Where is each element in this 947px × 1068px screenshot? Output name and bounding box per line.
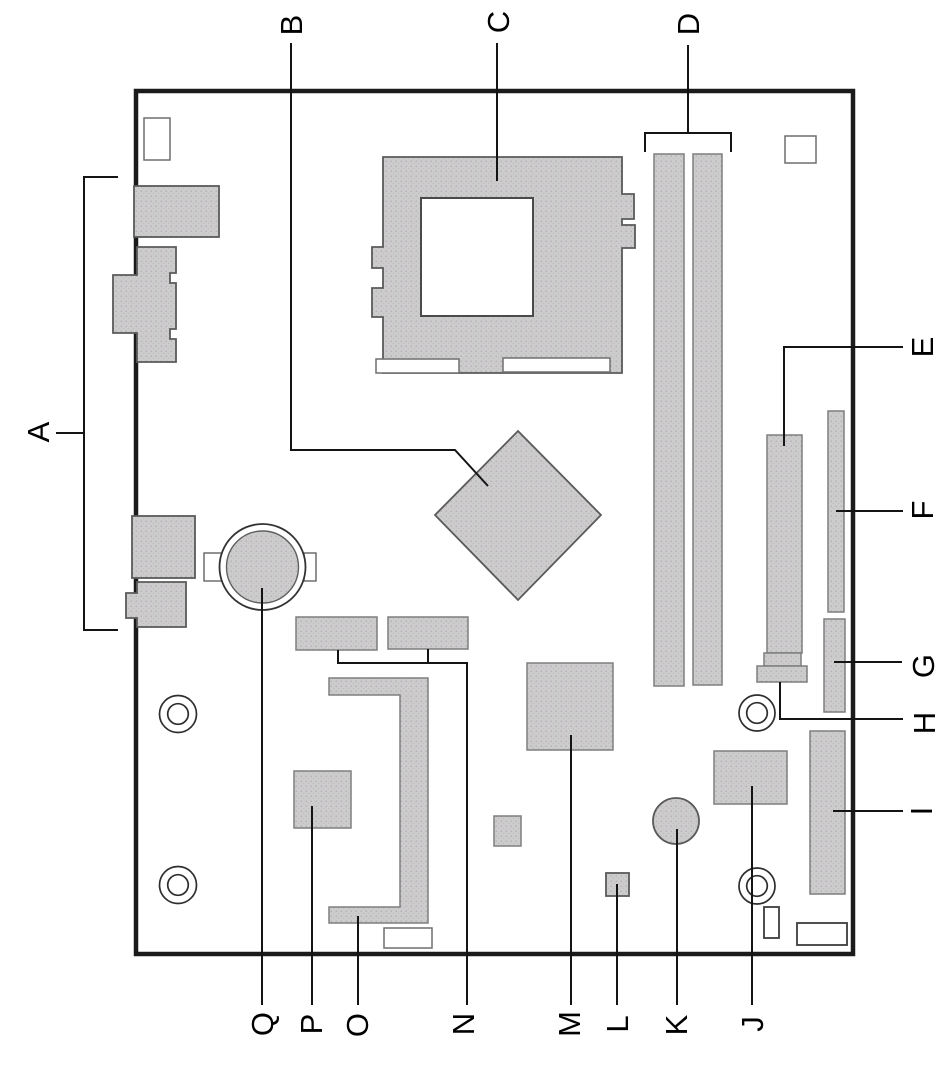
motherboard-diagram-svg: A B C D E F G H I J K L M N O P Q bbox=[0, 0, 947, 1068]
callout-label-h: H bbox=[907, 712, 942, 734]
header-n-1 bbox=[296, 617, 377, 650]
mounting-hole-3-inner bbox=[747, 703, 768, 724]
header-g bbox=[824, 619, 845, 712]
slot-e-body bbox=[767, 435, 802, 653]
callout-label-m: M bbox=[552, 1011, 587, 1037]
callout-label-p: P bbox=[294, 1014, 329, 1035]
small-chip-unlabeled bbox=[494, 816, 521, 846]
backpanel-connector-2 bbox=[113, 247, 176, 362]
mounting-hole-4-inner bbox=[747, 876, 768, 897]
connector-j bbox=[714, 751, 787, 804]
silkscreen-rect-bottom-right-small bbox=[764, 907, 779, 938]
backpanel-connector-3 bbox=[132, 516, 195, 578]
dimm-slot-2 bbox=[693, 154, 722, 685]
callout-label-n: N bbox=[446, 1013, 481, 1035]
callout-label-b: B bbox=[274, 15, 309, 36]
callout-label-j: J bbox=[735, 1016, 770, 1032]
slot-e-base bbox=[757, 666, 807, 682]
silkscreen-rect-bottom-center bbox=[384, 928, 432, 948]
callout-label-g: G bbox=[906, 654, 941, 678]
backpanel-connector-1 bbox=[134, 186, 219, 237]
callout-label-k: K bbox=[659, 1014, 694, 1035]
backpanel-port-small bbox=[144, 118, 170, 160]
cpu-socket-lever-slot-2 bbox=[503, 358, 610, 372]
mounting-hole-1-inner bbox=[168, 704, 189, 725]
dimm-slot-1 bbox=[654, 154, 684, 686]
callout-label-f: F bbox=[905, 501, 940, 520]
callout-label-o: O bbox=[340, 1013, 375, 1037]
callout-label-q: Q bbox=[245, 1012, 280, 1036]
silkscreen-rect-bottom-right bbox=[797, 923, 847, 945]
callout-bracket-a bbox=[84, 177, 118, 630]
callout-label-a: A bbox=[21, 421, 56, 442]
cpu-socket-cavity bbox=[421, 198, 533, 316]
header-n-2 bbox=[388, 617, 468, 649]
callout-label-d: D bbox=[671, 13, 706, 35]
connector-i bbox=[810, 731, 845, 894]
callout-label-l: L bbox=[600, 1015, 635, 1032]
cpu-socket-lever-slot-1 bbox=[376, 359, 459, 373]
mounting-hole-2-inner bbox=[168, 875, 189, 896]
slot-e-neck bbox=[764, 653, 801, 666]
callout-label-i: I bbox=[904, 807, 939, 816]
silkscreen-rect-top bbox=[785, 136, 816, 163]
callout-label-e: E bbox=[905, 337, 940, 358]
motherboard-layout-figure: A B C D E F G H I J K L M N O P Q bbox=[0, 0, 947, 1068]
component-p bbox=[294, 771, 351, 828]
callout-label-c: C bbox=[481, 11, 516, 33]
